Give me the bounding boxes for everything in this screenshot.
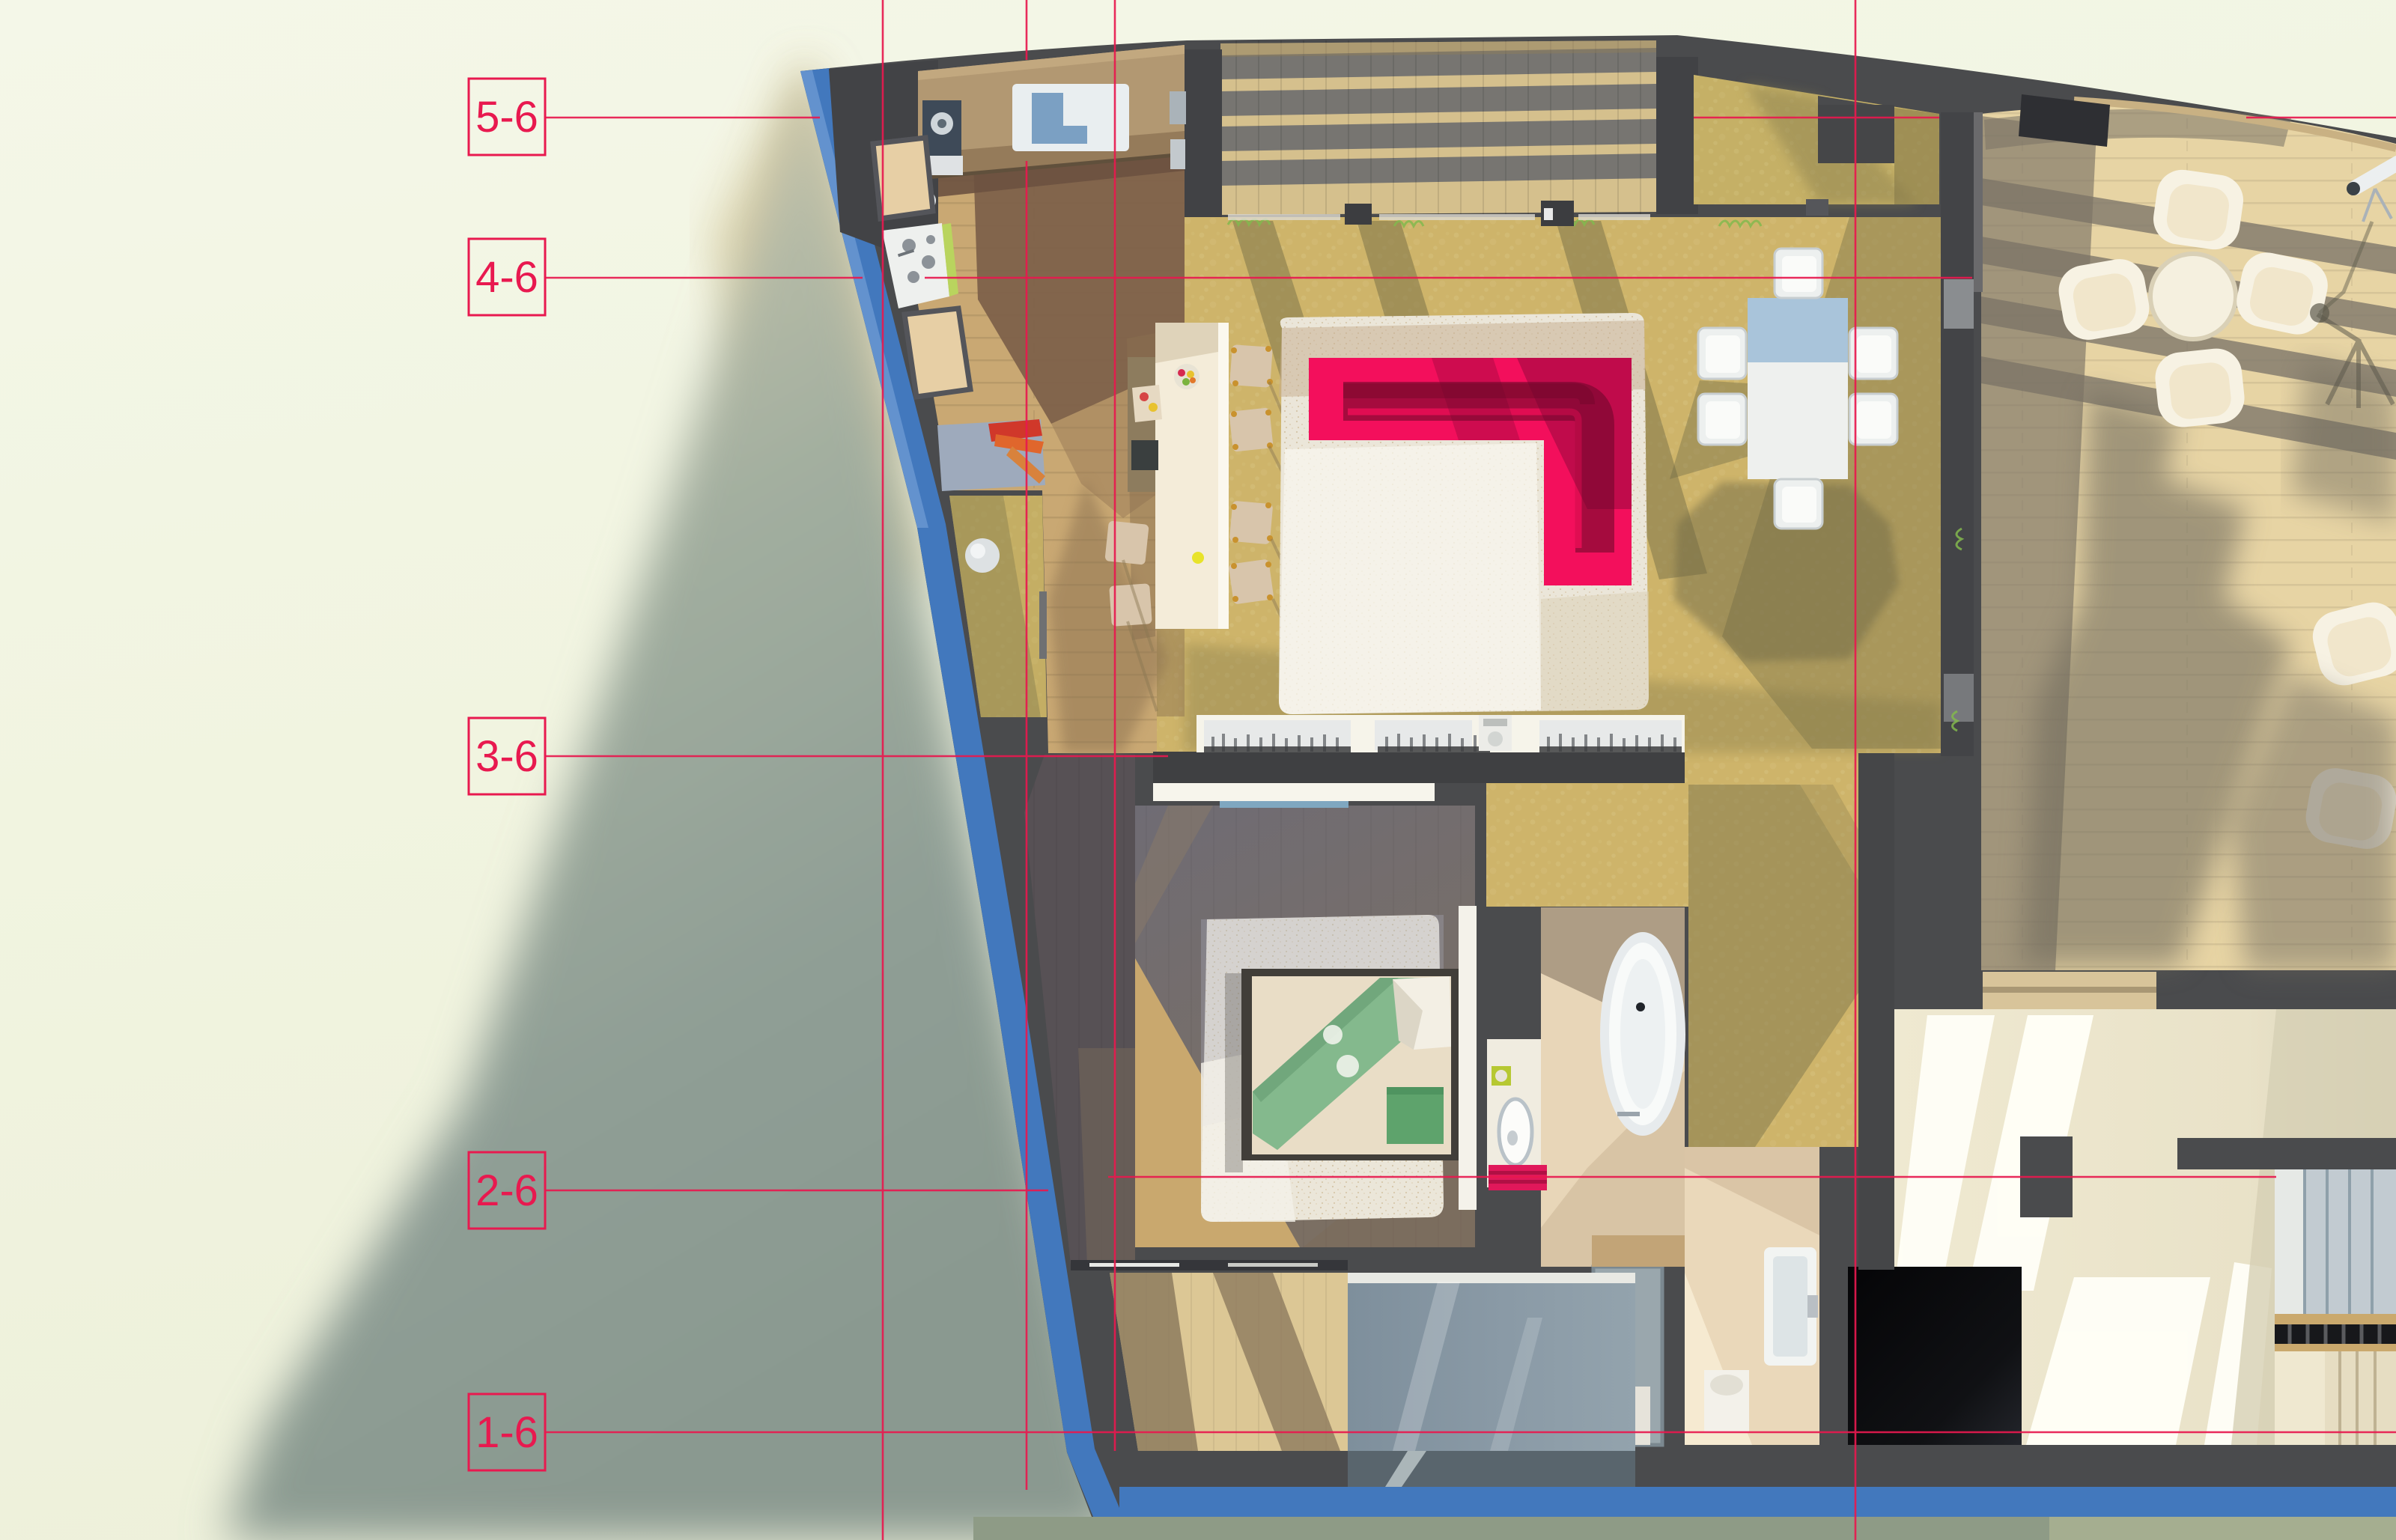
svg-text:5-6: 5-6 xyxy=(475,93,538,141)
svg-text:3-6: 3-6 xyxy=(475,732,538,781)
svg-text:2-6: 2-6 xyxy=(475,1166,538,1215)
svg-text:4-6: 4-6 xyxy=(475,253,538,302)
svg-text:1-6: 1-6 xyxy=(475,1408,538,1457)
